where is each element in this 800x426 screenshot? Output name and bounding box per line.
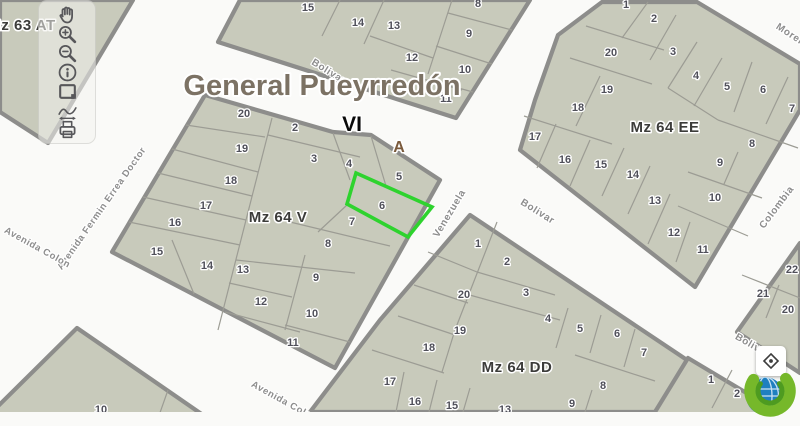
parcel-number[interactable]: 18 bbox=[225, 175, 237, 187]
district-title: General Pueyrredón bbox=[183, 70, 460, 102]
parcel-number[interactable]: 15 bbox=[151, 246, 163, 258]
parcel-number[interactable]: 14 bbox=[352, 17, 365, 29]
parcel-number[interactable]: 14 bbox=[201, 260, 214, 272]
block-label-mz-64-v: Mz 64 V bbox=[249, 209, 308, 226]
street-label: Bolivar bbox=[518, 197, 556, 227]
parcel-number[interactable]: 10 bbox=[306, 308, 318, 320]
parcel-number[interactable]: 8 bbox=[325, 238, 331, 250]
parcel-number[interactable]: 2 bbox=[292, 122, 298, 134]
zone-label-a: A bbox=[393, 139, 405, 156]
parcel-number[interactable]: 20 bbox=[458, 289, 470, 301]
parcel-number[interactable]: 1 bbox=[475, 238, 481, 250]
parcel-number[interactable]: 18 bbox=[423, 342, 435, 354]
street-label: Avenida Colon bbox=[2, 225, 72, 270]
parcel-number[interactable]: 4 bbox=[346, 158, 353, 170]
parcel-number[interactable]: 8 bbox=[475, 0, 481, 10]
parcel-number[interactable]: 19 bbox=[601, 84, 613, 96]
parcel-number[interactable]: 16 bbox=[409, 396, 421, 408]
parcel-number[interactable]: 8 bbox=[600, 380, 606, 392]
parcel-number[interactable]: 17 bbox=[529, 131, 541, 143]
parcel-number[interactable]: 9 bbox=[466, 28, 472, 40]
parcel-number[interactable]: 19 bbox=[454, 325, 466, 337]
block-mz-64-ee: 1220345619718178161591410131211Mz 64 EE bbox=[520, 0, 800, 287]
parcel-number[interactable]: 20 bbox=[238, 108, 250, 120]
parcel-number[interactable]: 22 bbox=[786, 264, 798, 276]
parcel-number[interactable]: 13 bbox=[649, 195, 661, 207]
parcel-number[interactable]: 9 bbox=[569, 398, 575, 410]
parcel-number[interactable]: 11 bbox=[697, 244, 709, 256]
parcel-number[interactable]: 1 bbox=[708, 374, 714, 386]
parcel-number[interactable]: 10 bbox=[709, 192, 721, 204]
parcel-number[interactable]: 11 bbox=[287, 337, 299, 349]
parcel-number[interactable]: 20 bbox=[605, 47, 617, 59]
parcel-number[interactable]: 12 bbox=[255, 296, 267, 308]
section-label-vi: VI bbox=[342, 113, 362, 136]
parcel-number[interactable]: 10 bbox=[95, 404, 107, 412]
map-canvas[interactable]: Mz 63 AT15141389121011202193451861771681… bbox=[0, 0, 800, 412]
parcel-number[interactable]: 15 bbox=[446, 400, 458, 412]
parcel-number[interactable]: 8 bbox=[749, 138, 755, 150]
parcel-number[interactable]: 3 bbox=[523, 287, 529, 299]
map-toolbar bbox=[38, 0, 96, 144]
parcel-number[interactable]: 12 bbox=[406, 52, 418, 64]
parcel-number[interactable]: 20 bbox=[782, 304, 794, 316]
parcel-number[interactable]: 15 bbox=[302, 2, 314, 14]
parcel-number[interactable]: 13 bbox=[237, 264, 249, 276]
parcel-number[interactable]: 13 bbox=[499, 404, 511, 412]
block-south-west-block: 10 bbox=[0, 328, 216, 412]
parcel-number[interactable]: 6 bbox=[379, 200, 385, 212]
parcel-number[interactable]: 9 bbox=[717, 157, 723, 169]
parcel-number[interactable]: 3 bbox=[311, 153, 317, 165]
parcel-number[interactable]: 18 bbox=[572, 102, 584, 114]
parcel-number[interactable]: 6 bbox=[760, 84, 766, 96]
parcel-number[interactable]: 1 bbox=[623, 0, 629, 11]
parcel-number[interactable]: 17 bbox=[384, 376, 396, 388]
map-viewport[interactable]: Mz 63 AT15141389121011202193451861771681… bbox=[0, 0, 800, 412]
parcel-number[interactable]: 10 bbox=[459, 64, 471, 76]
app-logo bbox=[739, 362, 800, 426]
block-label-mz-64-ee: Mz 64 EE bbox=[630, 119, 699, 136]
street-label: Colombia bbox=[757, 184, 796, 231]
parcel-number[interactable]: 5 bbox=[577, 323, 583, 335]
street-label: Moreno bbox=[774, 21, 800, 52]
block-shape-mz-64-ee[interactable] bbox=[520, 2, 800, 287]
parcel-number[interactable]: 6 bbox=[614, 328, 620, 340]
parcel-number[interactable]: 21 bbox=[757, 288, 769, 300]
parcel-number[interactable]: 17 bbox=[200, 200, 212, 212]
parcel-number[interactable]: 19 bbox=[236, 143, 248, 155]
parcel-number[interactable]: 7 bbox=[641, 347, 647, 359]
parcel-number[interactable]: 9 bbox=[313, 272, 319, 284]
block-shape-south-west-block[interactable] bbox=[0, 328, 216, 412]
parcel-number[interactable]: 15 bbox=[595, 159, 607, 171]
parcel-number[interactable]: 14 bbox=[627, 169, 640, 181]
parcel-number[interactable]: 4 bbox=[545, 313, 552, 325]
block-label-mz-64-dd: Mz 64 DD bbox=[482, 359, 553, 376]
parcel-number[interactable]: 5 bbox=[396, 171, 402, 183]
parcel-number[interactable]: 12 bbox=[668, 227, 680, 239]
parcel-number[interactable]: 16 bbox=[169, 217, 181, 229]
parcel-number[interactable]: 5 bbox=[724, 81, 730, 93]
print-icon bbox=[56, 118, 79, 141]
parcel-number[interactable]: 3 bbox=[670, 46, 676, 58]
street-label: Avenida Colon bbox=[249, 379, 319, 412]
parcel-number[interactable]: 13 bbox=[388, 20, 400, 32]
print-tool-button[interactable] bbox=[52, 120, 82, 139]
parcel-number[interactable]: 7 bbox=[349, 216, 355, 228]
parcel-number[interactable]: 4 bbox=[693, 70, 700, 82]
parcel-number[interactable]: 7 bbox=[789, 103, 795, 115]
parcel-number[interactable]: 16 bbox=[559, 154, 571, 166]
parcel-number[interactable]: 2 bbox=[651, 13, 657, 25]
parcel-number[interactable]: 2 bbox=[504, 256, 510, 268]
